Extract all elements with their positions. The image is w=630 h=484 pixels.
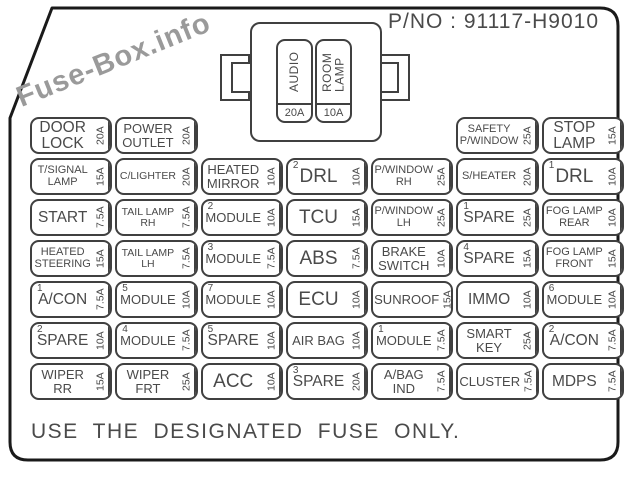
fuse-cell: FOG LAMP REAR10A <box>542 199 624 236</box>
fuse-number: 2 <box>293 160 299 171</box>
fuse-label: START <box>32 201 93 234</box>
fuse-label: SMART KEY <box>458 324 519 357</box>
fuse-amp: 20A <box>520 160 537 193</box>
fuse-number: 3 <box>293 365 299 376</box>
fuse-label: TAIL LAMP LH <box>117 242 178 275</box>
fuse-cell: C/LIGHTER20A <box>115 158 197 195</box>
fuse-cell: AIR BAG10A <box>286 322 368 359</box>
fuse-cell: WIPER FRT25A <box>115 363 197 400</box>
fuse-amp: 10A <box>605 283 622 316</box>
fuse-label: WIPER RR <box>32 365 93 398</box>
fuse-label: ACC <box>203 365 264 398</box>
fuse-amp: 7.5A <box>605 365 622 398</box>
fuse-label: MDPS <box>544 365 605 398</box>
fuse-cell: HEATED MIRROR10A <box>201 158 283 195</box>
fuse-amp: 7.5A <box>179 242 196 275</box>
fuse-cell: FOG LAMP FRONT15A <box>542 240 624 277</box>
fuse-amp: 20A <box>179 160 196 193</box>
fuse-label: POWER OUTLET <box>117 119 178 152</box>
fuse-number: 5 <box>208 324 214 335</box>
fuse-cell: 1MODULE7.5A <box>371 322 453 359</box>
fuse-amp: 10A <box>434 242 451 275</box>
fuse-amp: 15A <box>605 242 622 275</box>
fuse-number: 4 <box>463 242 469 253</box>
fuse-cell: ACC10A <box>201 363 283 400</box>
fuse-label: HEATED STEERING <box>32 242 93 275</box>
fuse-cell: 4SPARE15A <box>456 240 538 277</box>
fuse-amp: 7.5A <box>93 201 110 234</box>
relay-fuse-label: ROOM LAMP <box>317 41 350 103</box>
fuse-number: 1 <box>37 283 43 294</box>
fuse-cell: TAIL LAMP RH7.5A <box>115 199 197 236</box>
fuse-cell: POWER OUTLET20A <box>115 117 197 154</box>
fuse-cell: START7.5A <box>30 199 112 236</box>
fuse-amp: 7.5A <box>434 365 451 398</box>
fuse-amp: 15A <box>605 119 622 152</box>
fuse-cell: P/WINDOW LH25A <box>371 199 453 236</box>
fuse-label: T/SIGNAL LAMP <box>32 160 93 193</box>
fuse-amp: 15A <box>93 160 110 193</box>
fuse-label: FOG LAMP REAR <box>544 201 605 234</box>
fuse-amp: 10A <box>93 324 110 357</box>
fuse-cell: 2A/CON7.5A <box>542 322 624 359</box>
fuse-cell: SAFETY P/WINDOW25A <box>456 117 538 154</box>
fuse-label: P/WINDOW LH <box>373 201 434 234</box>
fuse-amp: 10A <box>605 201 622 234</box>
fuse-amp: 15A <box>349 201 366 234</box>
fuse-amp: 20A <box>179 119 196 152</box>
fuse-label: TCU <box>288 201 349 234</box>
fuse-cell: SUNROOF15A <box>371 281 453 318</box>
fuse-number: 3 <box>208 242 214 253</box>
fuse-cell: 7MODULE10A <box>201 281 283 318</box>
fuse-label: HEATED MIRROR <box>203 160 264 193</box>
relay-tab-left-inner <box>231 62 252 93</box>
fuse-cell: S/HEATER20A <box>456 158 538 195</box>
fuse-cell: 4MODULE7.5A <box>115 322 197 359</box>
fuse-number: 2 <box>37 324 43 335</box>
fuse-amp: 7.5A <box>349 242 366 275</box>
fuse-amp: 15A <box>520 242 537 275</box>
fuse-cell: ABS7.5A <box>286 240 368 277</box>
fuse-amp: 10A <box>179 283 196 316</box>
fuse-cell: T/SIGNAL LAMP15A <box>30 158 112 195</box>
fuse-amp: 10A <box>264 160 281 193</box>
fuse-label: STOP LAMP <box>544 119 605 152</box>
fuse-cell: A/BAG IND7.5A <box>371 363 453 400</box>
fuse-number: 2 <box>208 201 214 212</box>
fuse-cell: WIPER RR15A <box>30 363 112 400</box>
part-number: P/NO : 91117-H9010 <box>388 10 599 34</box>
fuse-label: FOG LAMP FRONT <box>544 242 605 275</box>
fuse-label: C/LIGHTER <box>117 160 178 193</box>
fuse-number: 2 <box>549 324 555 335</box>
fuse-cell: SMART KEY25A <box>456 322 538 359</box>
fuse-amp: 7.5A <box>605 324 622 357</box>
fuse-amp: 10A <box>520 283 537 316</box>
fuse-amp: 15A <box>93 365 110 398</box>
fuse-cell: 5SPARE10A <box>201 322 283 359</box>
fuse-amp: 10A <box>349 160 366 193</box>
fuse-amp: 7.5A <box>179 324 196 357</box>
fuse-number: 1 <box>378 324 384 335</box>
fuse-label: A/BAG IND <box>373 365 434 398</box>
fuse-amp: 7.5A <box>264 242 281 275</box>
fuse-cell: MDPS7.5A <box>542 363 624 400</box>
relay-fuse-room-lamp: ROOM LAMP 10A <box>315 39 352 123</box>
fuse-cell: P/WINDOW RH25A <box>371 158 453 195</box>
fuse-amp: 25A <box>520 119 537 152</box>
fuse-cell: 2DRL10A <box>286 158 368 195</box>
fuse-number: 6 <box>549 283 555 294</box>
footer-warning: USE THE DESIGNATED FUSE ONLY. <box>31 420 460 444</box>
relay-fuse-label: AUDIO <box>278 41 311 103</box>
fuse-amp: 25A <box>520 324 537 357</box>
fuse-cell: 6MODULE10A <box>542 281 624 318</box>
fuse-number: 5 <box>122 283 128 294</box>
fuse-cell: 1DRL10A <box>542 158 624 195</box>
fuse-number: 1 <box>463 201 469 212</box>
fuse-label: CLUSTER <box>458 365 521 398</box>
fuse-label: SAFETY P/WINDOW <box>458 119 519 152</box>
fuse-amp: 25A <box>434 201 451 234</box>
relay-fuse-audio: AUDIO 20A <box>276 39 313 123</box>
fuse-cell: 3MODULE7.5A <box>201 240 283 277</box>
fuse-amp: 20A <box>93 119 110 152</box>
fuse-amp: 25A <box>179 365 196 398</box>
fuse-label: WIPER FRT <box>117 365 178 398</box>
fuse-label: ABS <box>288 242 349 275</box>
fuse-amp: 20A <box>349 365 366 398</box>
fuse-label: IMMO <box>458 283 519 316</box>
fuse-cell: 3SPARE20A <box>286 363 368 400</box>
fuse-label: ECU <box>288 283 349 316</box>
fuse-cell: 5MODULE10A <box>115 281 197 318</box>
fuse-cell: 1A/CON7.5A <box>30 281 112 318</box>
fuse-label: TAIL LAMP RH <box>117 201 178 234</box>
fuse-amp: 15A <box>440 283 453 316</box>
fuse-cell: IMMO10A <box>456 281 538 318</box>
fuse-amp: 7.5A <box>521 365 538 398</box>
fuse-label: AIR BAG <box>288 324 349 357</box>
fuse-cell: 1SPARE25A <box>456 199 538 236</box>
fuse-cell: STOP LAMP15A <box>542 117 624 154</box>
fuse-amp: 10A <box>264 324 281 357</box>
fuse-box-diagram: Fuse-Box.info P/NO : 91117-H9010 AUDIO 2… <box>0 0 630 484</box>
fuse-label: SUNROOF <box>373 283 440 316</box>
fuse-cell: TCU15A <box>286 199 368 236</box>
fuse-cell: CLUSTER7.5A <box>456 363 538 400</box>
fuse-cell: 2SPARE10A <box>30 322 112 359</box>
fuse-label: P/WINDOW RH <box>373 160 434 193</box>
fuse-cell: HEATED STEERING15A <box>30 240 112 277</box>
fuse-amp: 7.5A <box>434 324 451 357</box>
fuse-cell: DOOR LOCK20A <box>30 117 112 154</box>
fuse-cell: 2MODULE10A <box>201 199 283 236</box>
fuse-amp: 7.5A <box>93 283 110 316</box>
fuse-cell: BRAKE SWITCH10A <box>371 240 453 277</box>
fuse-cell: TAIL LAMP LH7.5A <box>115 240 197 277</box>
fuse-grid: DOOR LOCK20APOWER OUTLET20ASAFETY P/WIND… <box>30 117 624 400</box>
fuse-amp: 10A <box>349 324 366 357</box>
fuse-amp: 25A <box>434 160 451 193</box>
fuse-number: 7 <box>208 283 214 294</box>
fuse-number: 4 <box>122 324 128 335</box>
fuse-cell: ECU10A <box>286 281 368 318</box>
fuse-amp: 15A <box>93 242 110 275</box>
fuse-amp: 10A <box>264 201 281 234</box>
fuse-label: BRAKE SWITCH <box>373 242 434 275</box>
fuse-amp: 10A <box>605 160 622 193</box>
fuse-amp: 10A <box>264 283 281 316</box>
fuse-amp: 10A <box>264 365 281 398</box>
fuse-number: 1 <box>549 160 555 171</box>
fuse-amp: 10A <box>349 283 366 316</box>
fuse-label: S/HEATER <box>458 160 519 193</box>
fuse-amp: 25A <box>520 201 537 234</box>
fuse-label: DOOR LOCK <box>32 119 93 152</box>
fuse-amp: 7.5A <box>179 201 196 234</box>
